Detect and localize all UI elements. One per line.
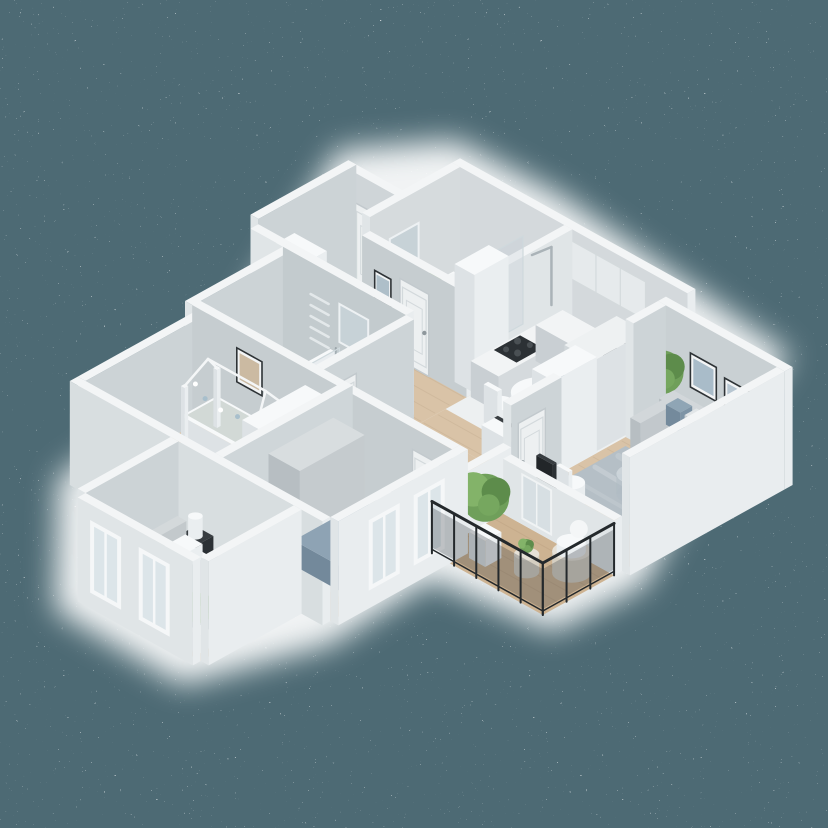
master-window-2 (141, 550, 168, 633)
crib-post-1 (213, 366, 220, 428)
garland-light-3 (218, 408, 223, 413)
master-window-1 (92, 523, 119, 606)
cooktop-burner-1 (514, 338, 521, 345)
garland-light-4 (235, 414, 240, 419)
master-lamp-1 (188, 512, 203, 539)
apartment-render-canvas (0, 0, 828, 828)
isometric-floorplan-svg (0, 0, 828, 828)
cooktop-burner-3 (503, 346, 509, 352)
cooktop-burner-4 (527, 342, 533, 348)
bedroom3-window-2 (371, 506, 398, 587)
balcony-chair-backpillow (570, 520, 588, 538)
cooktop-burner-2 (514, 350, 521, 357)
garland-light-2 (203, 396, 208, 401)
garland-light-1 (193, 382, 198, 387)
